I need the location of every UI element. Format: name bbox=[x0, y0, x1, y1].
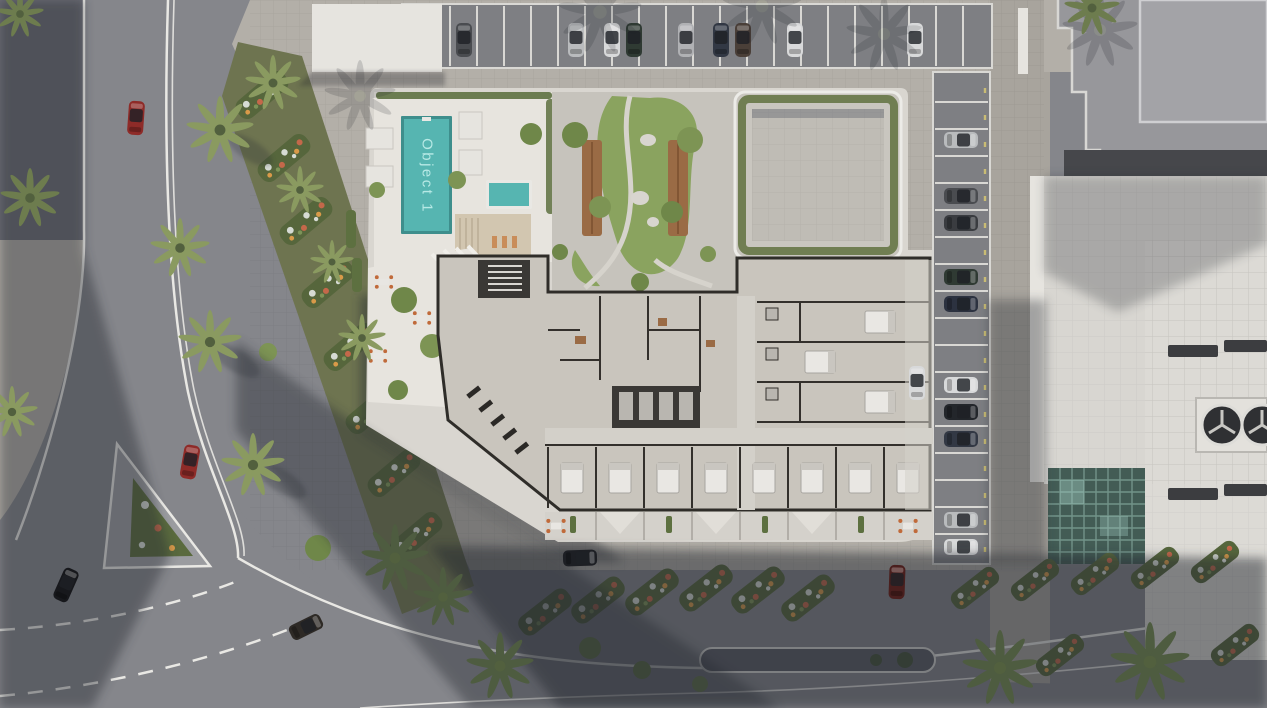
boulder bbox=[640, 134, 656, 146]
elevator-door bbox=[619, 392, 633, 420]
roof-vent bbox=[1168, 488, 1218, 500]
terrace-inner-shadow bbox=[752, 109, 884, 118]
dark-sedan bbox=[563, 549, 598, 566]
pool-ladder bbox=[422, 117, 431, 121]
cabana bbox=[459, 150, 482, 175]
kids-pool-water bbox=[489, 183, 529, 206]
site-plan-render: Object 1 bbox=[0, 0, 1267, 708]
rooftop-fan-unit bbox=[1196, 398, 1267, 452]
bed bbox=[657, 463, 679, 493]
roof-vent bbox=[1224, 340, 1267, 352]
dark-red-car bbox=[888, 565, 905, 600]
parked-car bbox=[944, 377, 978, 393]
table bbox=[706, 340, 715, 347]
pool-object-label[interactable]: Object 1 bbox=[419, 138, 436, 214]
bathroom bbox=[766, 308, 778, 320]
white-car bbox=[909, 366, 925, 400]
bed bbox=[801, 463, 823, 493]
parked-car bbox=[944, 215, 978, 231]
courtyard-tree bbox=[589, 196, 611, 218]
deck-tree bbox=[369, 182, 385, 198]
parked-car bbox=[787, 23, 803, 57]
boulder bbox=[647, 217, 659, 227]
bed bbox=[849, 463, 871, 493]
balcony-hedge bbox=[762, 516, 768, 533]
low-wall bbox=[1018, 8, 1028, 74]
table bbox=[658, 318, 667, 326]
bed bbox=[705, 463, 727, 493]
terrace-tree bbox=[388, 380, 408, 400]
courtyard-tree bbox=[677, 127, 703, 153]
balcony-hedge bbox=[666, 516, 672, 533]
courtyard-garden bbox=[552, 92, 740, 291]
glass-glint bbox=[1060, 480, 1084, 504]
balcony-hedge bbox=[570, 516, 576, 533]
roof-vent bbox=[1224, 484, 1267, 496]
parking-canopy-roof bbox=[312, 4, 442, 72]
cabana bbox=[366, 128, 393, 149]
bed bbox=[561, 463, 583, 493]
parked-car bbox=[944, 296, 978, 312]
tower-upper-roof bbox=[1140, 0, 1267, 122]
lounger bbox=[492, 236, 497, 248]
courtyard-tree bbox=[562, 122, 588, 148]
parked-car bbox=[944, 269, 978, 285]
courtyard-tree bbox=[552, 244, 568, 260]
main-pool: Object 1 bbox=[401, 116, 452, 234]
deck-tree bbox=[520, 123, 542, 145]
parked-car bbox=[456, 23, 472, 57]
table bbox=[575, 336, 586, 344]
parked-car bbox=[944, 188, 978, 204]
glass-atrium bbox=[1048, 468, 1145, 564]
roof-vent bbox=[1168, 345, 1218, 357]
parked-car bbox=[944, 512, 978, 528]
dark-paver-strip bbox=[1064, 150, 1267, 176]
parked-car bbox=[678, 23, 694, 57]
aerial-render-canvas: Object 1 bbox=[0, 0, 1267, 708]
parked-car bbox=[944, 539, 978, 555]
cabana bbox=[459, 112, 482, 139]
roof-terrace bbox=[735, 92, 901, 258]
hedge-planter bbox=[346, 210, 356, 248]
balcony-band bbox=[545, 512, 933, 540]
parked-car bbox=[944, 132, 978, 148]
round-shrub bbox=[305, 535, 331, 561]
courtyard-tree bbox=[661, 201, 683, 223]
bed bbox=[753, 463, 775, 493]
balcony-hedge bbox=[858, 516, 864, 533]
elevator-door bbox=[679, 392, 693, 420]
deck-hedge bbox=[376, 92, 552, 99]
red-car bbox=[127, 100, 145, 135]
elevator-core bbox=[612, 386, 700, 428]
bed bbox=[609, 463, 631, 493]
lounger bbox=[512, 236, 517, 248]
stair-core bbox=[478, 260, 530, 298]
bathroom bbox=[766, 348, 778, 360]
side-parking bbox=[933, 72, 990, 564]
bed bbox=[805, 351, 835, 373]
elevator-door bbox=[639, 392, 653, 420]
kids-pool bbox=[486, 180, 532, 209]
boulder bbox=[631, 191, 649, 205]
hedge-planter bbox=[352, 258, 362, 292]
parked-car bbox=[713, 23, 729, 57]
east-street-shadow bbox=[988, 300, 1046, 562]
courtyard-tree bbox=[700, 246, 716, 262]
parked-car bbox=[944, 431, 978, 447]
elevator-door bbox=[659, 392, 673, 420]
glass-glint bbox=[1100, 516, 1128, 536]
lounger bbox=[502, 236, 507, 248]
courtyard-tree bbox=[631, 273, 649, 291]
bathroom bbox=[766, 388, 778, 400]
deck-tree bbox=[448, 171, 466, 189]
bed bbox=[865, 311, 895, 333]
bed bbox=[865, 391, 895, 413]
parked-car bbox=[944, 404, 978, 420]
floor-plan bbox=[438, 256, 933, 510]
terrace-tree bbox=[391, 287, 417, 313]
